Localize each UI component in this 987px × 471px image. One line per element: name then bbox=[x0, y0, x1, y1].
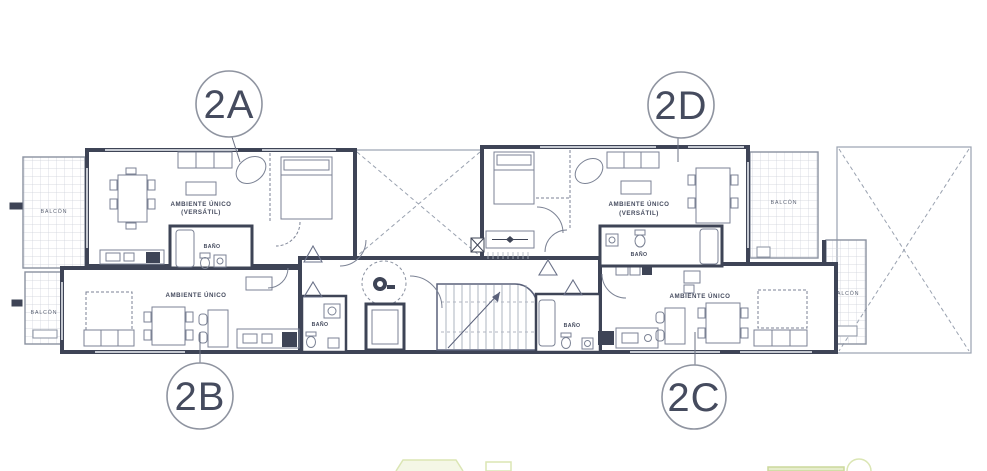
bathroom-label-2b: BAÑO bbox=[312, 321, 329, 328]
staircase bbox=[437, 284, 537, 350]
room-label-2a-line2: (VERSÁTIL) bbox=[181, 209, 221, 216]
balcony-bottom-left: BALCÓN bbox=[25, 272, 63, 344]
bathroom-label-2a: BAÑO bbox=[204, 243, 221, 250]
badge-2c-label: 2C bbox=[667, 376, 720, 420]
badge-2d-label: 2D bbox=[654, 84, 707, 128]
bottom-cropped-graphics bbox=[396, 459, 871, 471]
badge-2b-label: 2B bbox=[175, 375, 226, 419]
bathroom-2c-core: BAÑO bbox=[536, 294, 600, 352]
balcony-label-2d: BALCÓN bbox=[771, 199, 798, 206]
bed bbox=[494, 152, 534, 204]
balcony-label-bottom-left: BALCÓN bbox=[31, 309, 58, 316]
balcony-2d: BALCÓN bbox=[750, 152, 818, 258]
bed bbox=[281, 157, 332, 219]
void-top-center bbox=[355, 150, 482, 258]
elevator-shaft bbox=[366, 304, 404, 350]
room-label-2d-line2: (VERSÁTIL) bbox=[619, 210, 659, 217]
room-label-2d-line1: AMBIENTE ÚNICO bbox=[609, 201, 670, 208]
room-label-2b: AMBIENTE ÚNICO bbox=[166, 292, 227, 299]
bathroom-2a: BAÑO bbox=[170, 226, 252, 269]
dining-table bbox=[688, 168, 738, 223]
bathroom-label-2d: BAÑO bbox=[631, 251, 648, 258]
balcony-top-left: BALCÓN bbox=[23, 157, 85, 268]
bathroom-2d: BAÑO bbox=[600, 226, 722, 266]
room-label-2a-line1: AMBIENTE ÚNICO bbox=[171, 201, 232, 208]
balcony-label-top-left: BALCÓN bbox=[41, 208, 68, 215]
room-label-2c: AMBIENTE ÚNICO bbox=[670, 293, 731, 300]
floor-plan-drawing: BALCÓN BALCÓN BALCÓN BALCÓN bbox=[0, 0, 987, 471]
bathroom-label-2c: BAÑO bbox=[564, 322, 581, 329]
floor-plan-page: BALCÓN BALCÓN BALCÓN BALCÓN bbox=[0, 0, 987, 471]
dining-table bbox=[698, 303, 748, 343]
bathroom-2b-core: BAÑO bbox=[302, 296, 346, 352]
badge-2a-label: 2A bbox=[204, 83, 255, 127]
shaft-marker-icon bbox=[471, 238, 484, 252]
